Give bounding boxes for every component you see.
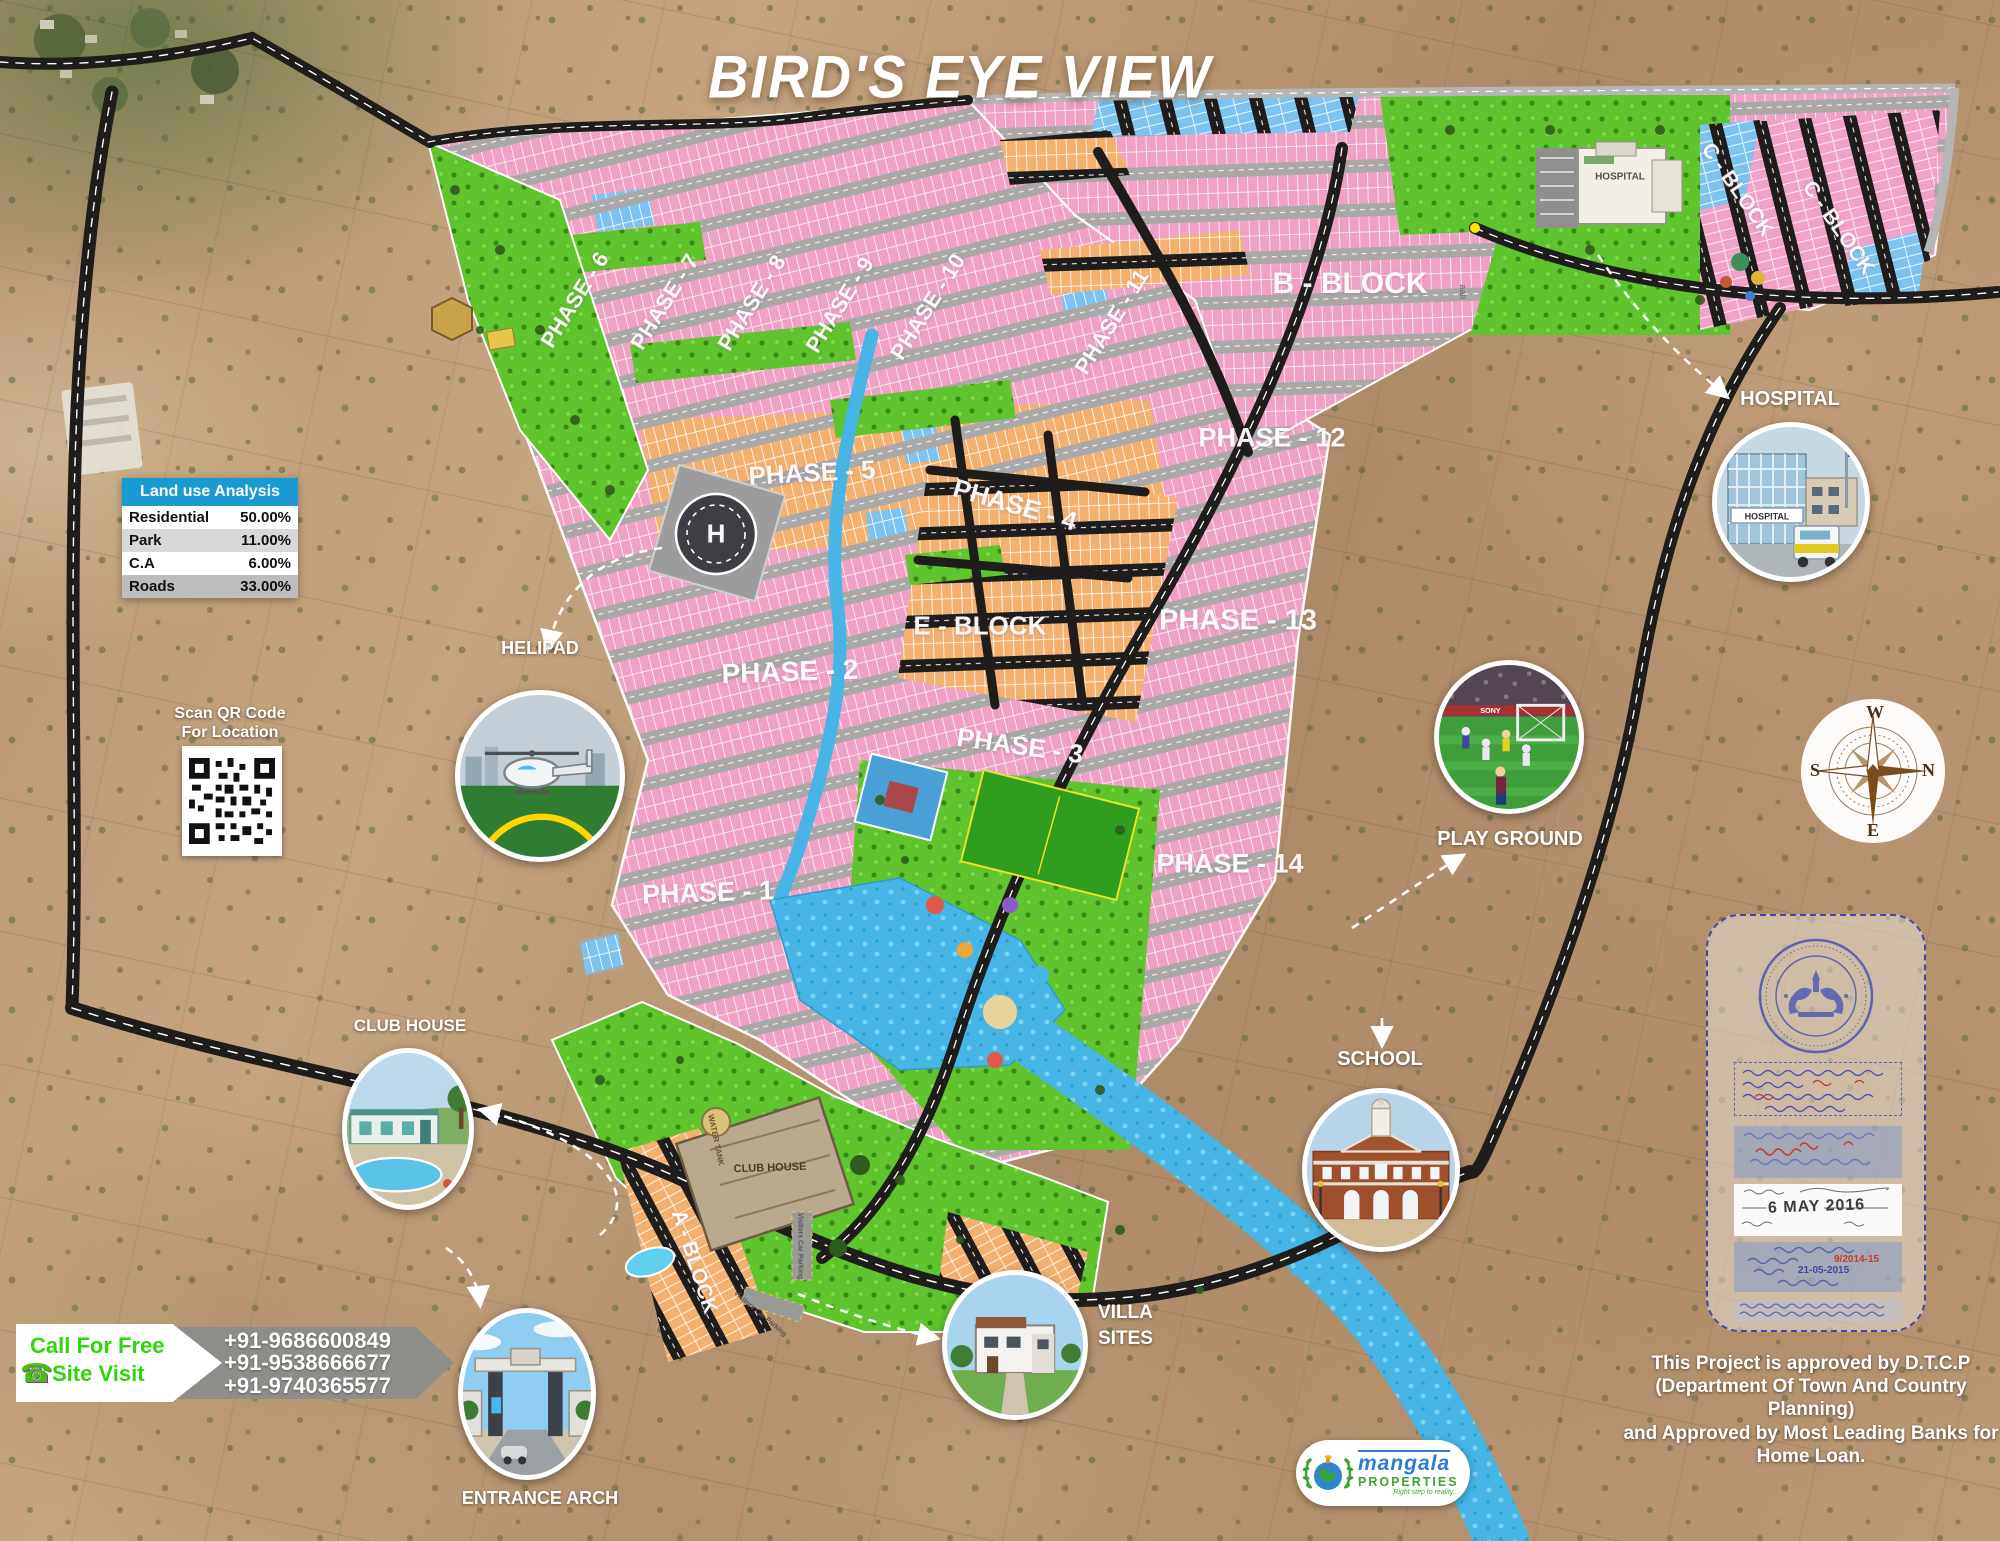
approval-line: (Department Of Town And Country Planning…	[1622, 1375, 2000, 1421]
stamp-ref-date: 21-05-2015	[1798, 1265, 1849, 1276]
approval-line: Home Loan.	[1622, 1445, 2000, 1468]
land-use-name: Residential	[129, 509, 209, 526]
label-phase-14: PHASE - 14	[1156, 849, 1303, 880]
clubhouse-callout-photo	[342, 1048, 474, 1210]
hospital-sign-text: HOSPITAL	[1745, 511, 1790, 521]
playground-photo: SONY	[1439, 665, 1579, 809]
label-phase-12: PHASE - 12	[1198, 423, 1345, 454]
land-use-table: Land use Analysis Residential 50.00% Par…	[122, 478, 298, 598]
stamp-script-5	[1734, 1300, 1898, 1320]
school-photo	[1307, 1093, 1455, 1247]
ad-board-text: SONY	[1480, 706, 1501, 715]
hospital-photo: HOSPITAL	[1717, 427, 1865, 577]
helicopter-photo	[460, 695, 620, 857]
hospital-callout-photo: HOSPITAL	[1712, 422, 1870, 582]
stamp-date: 6 MAY 2016	[1768, 1196, 1866, 1217]
phone-number: +91-9686600849	[224, 1330, 434, 1352]
label-phase-2: PHASE - 2	[721, 654, 859, 691]
stamp-text-block-1	[1734, 1062, 1902, 1116]
entrance-arch-photo	[463, 1313, 591, 1475]
villa-callout-label-line2: SITES	[1098, 1328, 1153, 1350]
developer-logo: mangala PROPERTIES Right step to reality…	[1296, 1440, 1470, 1506]
clubhouse-photo	[347, 1053, 469, 1205]
label-phase-1: PHASE - 1	[641, 875, 774, 911]
stamp-text-block-4: 9/2014-15 21-05-2015	[1734, 1242, 1902, 1292]
phone-number: +91-9538666677	[224, 1352, 434, 1374]
table-row: Park 11.00%	[122, 529, 298, 552]
compass-rose: W N E S	[1798, 696, 1948, 846]
hospital-callout-label: HOSPITAL	[1700, 388, 1880, 411]
table-row: C.A 6.00%	[122, 552, 298, 575]
entrance-callout-photo	[458, 1308, 596, 1480]
clubhouse-callout-label: CLUB HOUSE	[330, 1016, 490, 1036]
stamp-text-block-2	[1734, 1126, 1902, 1178]
land-use-name: C.A	[129, 555, 155, 572]
stamp-footer-strip	[1734, 1300, 1902, 1322]
qr-pattern	[189, 753, 275, 849]
table-row: Roads 33.00%	[122, 575, 298, 598]
label-phase-13: PHASE - 13	[1159, 605, 1317, 638]
stamp-date-block: 6 MAY 2016	[1734, 1184, 1902, 1236]
entrance-callout-label: ENTRANCE ARCH	[440, 1488, 640, 1509]
stamp-ref-no: 9/2014-15	[1834, 1254, 1879, 1265]
qr-code	[182, 746, 282, 856]
phone-numbers: +91-9686600849 +91-9538666677 +91-974036…	[224, 1330, 434, 1397]
land-use-name: Park	[129, 532, 162, 549]
school-callout-photo	[1302, 1088, 1460, 1252]
approval-stamp: 6 MAY 2016 9/2014-15 21-05-2015	[1706, 914, 1926, 1332]
school-callout-label: SCHOOL	[1300, 1048, 1460, 1071]
villa-callout-photo	[942, 1270, 1088, 1420]
logo-text: mangala PROPERTIES Right step to reality…	[1358, 1450, 1459, 1497]
land-use-value: 11.00%	[241, 532, 291, 549]
playground-callout-photo: SONY	[1434, 660, 1584, 814]
call-free-text: Call For Free	[30, 1333, 180, 1359]
logo-globe-icon	[1300, 1445, 1356, 1501]
phone-icon: ☎	[20, 1358, 52, 1389]
land-use-value: 50.00%	[240, 509, 291, 526]
land-use-value: 6.00%	[248, 555, 291, 572]
logo-tagline: Right step to reality...	[1358, 1489, 1459, 1496]
hospital-structure	[1536, 142, 1682, 228]
helipad-callout-label: HELIPAD	[455, 638, 625, 659]
government-seal	[1756, 936, 1876, 1056]
compass-east: E	[1867, 820, 1879, 841]
label-visitors-parking-1: Visitors Car Parking	[797, 1213, 804, 1280]
villa-callout-label-line1: VILLA	[1098, 1302, 1153, 1324]
label-hospital-building: HOSPITAL	[1595, 172, 1645, 183]
table-row: Residential 50.00%	[122, 506, 298, 529]
phone-number: +91-9740365577	[224, 1375, 434, 1397]
compass-south: S	[1810, 760, 1820, 781]
approval-line: and Approved by Most Leading Banks for	[1622, 1422, 2000, 1445]
qr-caption: Scan QR Code For Location	[150, 704, 310, 742]
stamp-script-2	[1734, 1126, 1898, 1174]
compass-west: W	[1866, 702, 1884, 723]
playground-callout-label: PLAY GROUND	[1410, 828, 1610, 851]
villa-photo	[947, 1275, 1083, 1415]
qr-caption-line2: For Location	[150, 723, 310, 742]
label-e-block: E - BLOCK	[914, 611, 1047, 642]
logo-name: mangala	[1358, 1450, 1450, 1474]
approval-line: This Project is approved by D.T.C.P	[1622, 1352, 2000, 1375]
qr-caption-line1: Scan QR Code	[150, 704, 310, 723]
helipad-h-marking: H	[707, 519, 726, 550]
label-b-block: B - BLOCK	[1273, 267, 1428, 301]
label-clubhouse-building: CLUB HOUSE	[733, 1161, 806, 1176]
land-use-name: Roads	[129, 578, 175, 595]
logo-word: PROPERTIES	[1358, 1476, 1459, 1489]
site-visit-text: Site Visit	[52, 1361, 202, 1387]
label-road-name: aali	[1458, 284, 1468, 299]
page-title: BIRD'S EYE VIEW	[660, 41, 1260, 111]
land-use-value: 33.00%	[240, 578, 291, 595]
land-use-header: Land use Analysis	[122, 478, 298, 506]
stamp-script-1	[1735, 1063, 1899, 1113]
compass-north: N	[1922, 760, 1935, 781]
poster-canvas: PHASE - 6 PHASE - 7 PHASE - 8 PHASE - 9 …	[0, 0, 2000, 1541]
approval-note: This Project is approved by D.T.C.P (Dep…	[1622, 1352, 2000, 1468]
helipad-callout-photo	[455, 690, 625, 862]
label-phase-5: PHASE - 5	[748, 454, 877, 492]
